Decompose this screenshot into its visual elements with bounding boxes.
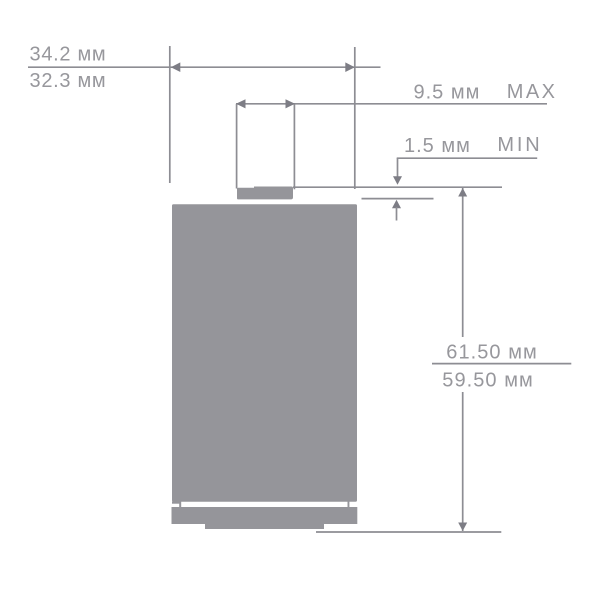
svg-text:MAX: MAX [507,81,558,103]
svg-text:32.3 мм: 32.3 мм [30,70,107,92]
svg-text:59.50 мм: 59.50 мм [442,370,534,392]
svg-text:34.2 мм: 34.2 мм [30,44,107,66]
svg-text:MIN: MIN [497,134,542,156]
svg-text:1.5 мм: 1.5 мм [404,135,471,157]
svg-text:9.5 мм: 9.5 мм [414,82,481,104]
svg-text:61.50 мм: 61.50 мм [446,342,538,364]
